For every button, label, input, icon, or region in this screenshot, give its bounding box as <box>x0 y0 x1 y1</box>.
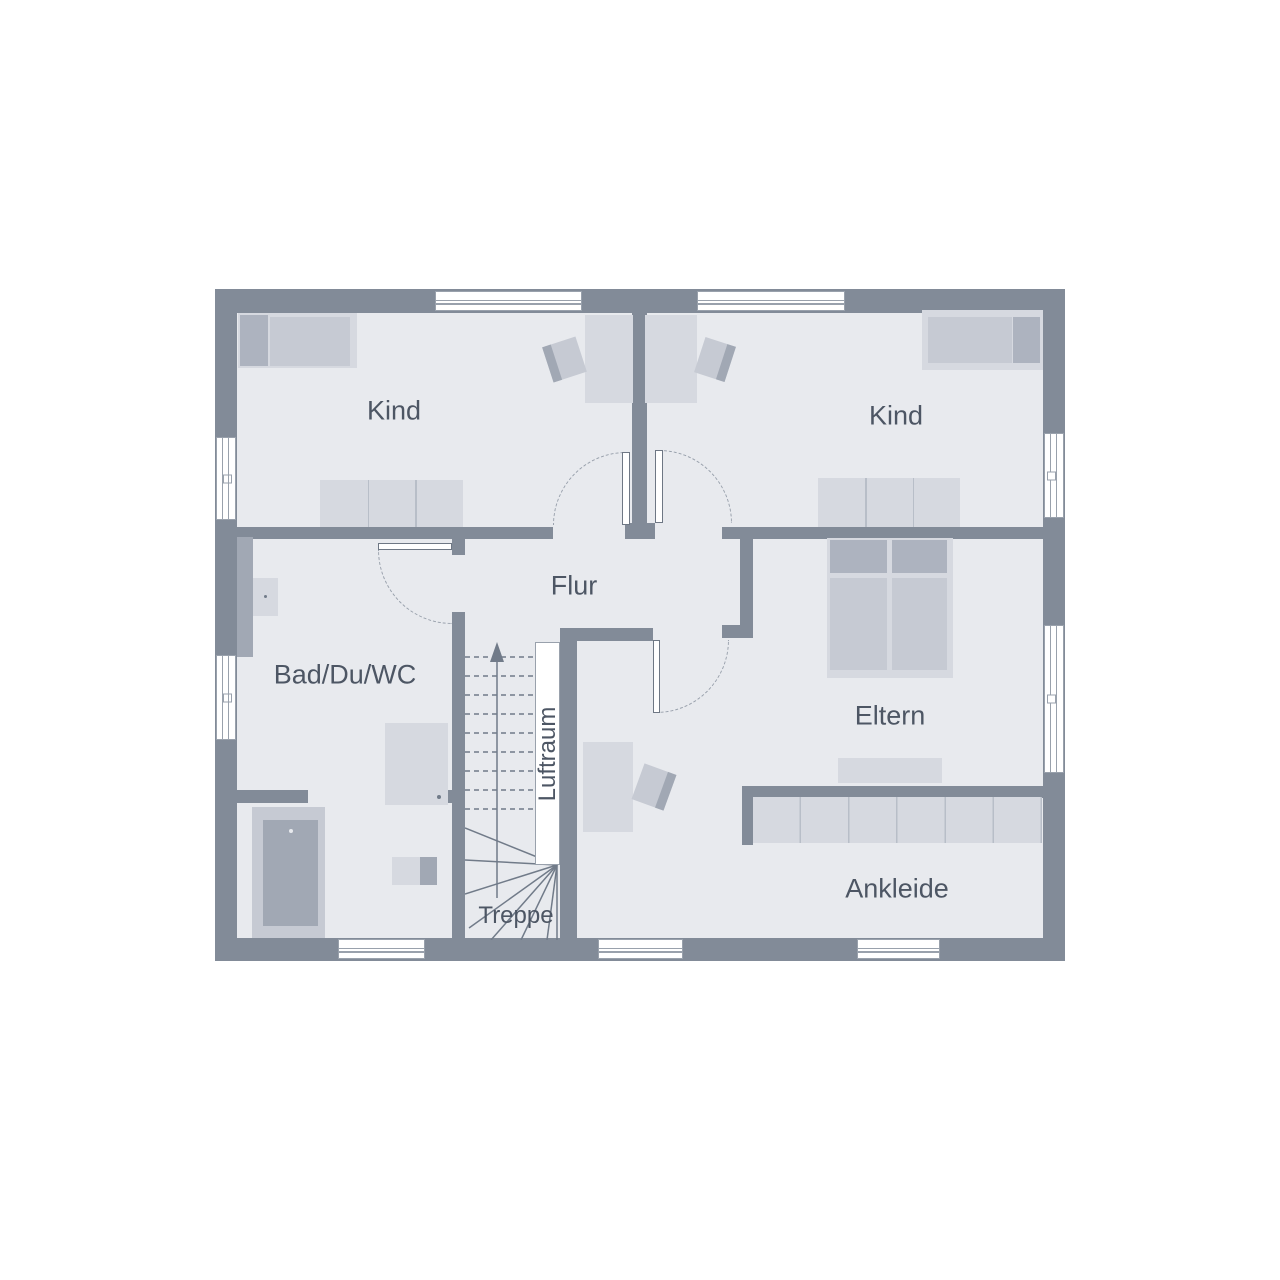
floor-plan: Luftraum Kind Kind Flur Bad <box>215 289 1065 961</box>
window-sill <box>1047 695 1056 704</box>
bed-pillow <box>240 315 268 366</box>
bathtub <box>263 820 318 926</box>
bed-pillow <box>830 540 887 573</box>
dresser-eltern <box>838 758 942 783</box>
shower <box>385 723 448 805</box>
window-left-bad <box>216 655 236 740</box>
bathtub-tap <box>289 829 293 833</box>
window-top-left <box>435 291 582 311</box>
window-sill <box>223 474 232 483</box>
wall-bad-stair <box>452 612 465 940</box>
luftraum-void: Luftraum <box>535 642 560 865</box>
door-leaf-eltern <box>653 640 660 713</box>
wc <box>392 857 420 885</box>
door-leaf-kind-right <box>655 450 663 523</box>
chair-backrest <box>542 345 562 383</box>
bed-pillow <box>892 540 947 573</box>
door-leaf-kind-left <box>622 452 630 525</box>
door-swing-kind-right <box>659 450 732 523</box>
window-top-right <box>697 291 845 311</box>
room-label-treppe: Treppe <box>478 902 553 930</box>
window-bottom-eltern <box>598 939 683 959</box>
door-swing-bad <box>378 550 452 624</box>
wall-ankleide-stub <box>742 786 753 845</box>
wall-flur-eltern-flange <box>722 625 753 638</box>
installation-pillar <box>237 537 253 657</box>
wall-bathtub-alcove <box>237 790 308 803</box>
desk-kind-left <box>585 315 633 403</box>
window-right-kind <box>1044 433 1064 518</box>
room-label-bad: Bad/Du/WC <box>274 660 417 691</box>
outer-wall-left <box>215 289 237 961</box>
door-swing-kind-left <box>553 452 626 525</box>
chair-eltern <box>632 763 677 810</box>
door-leaf-bad <box>378 543 452 550</box>
window-bottom-bad <box>338 939 425 959</box>
desk-kind-right <box>645 315 697 403</box>
bed-blanket <box>928 317 1012 363</box>
window-bottom-ankleide <box>857 939 940 959</box>
washbasin-tap <box>264 595 267 598</box>
room-label-kind-right: Kind <box>869 401 923 432</box>
chair-backrest <box>716 344 736 382</box>
room-label-flur: Flur <box>551 571 598 602</box>
window-sill <box>1047 471 1056 480</box>
room-label-ankleide: Ankleide <box>845 874 949 905</box>
desk-eltern <box>583 742 633 832</box>
bed-pillow <box>1013 317 1040 363</box>
wall-flur-eltern <box>740 539 753 630</box>
wall-bad-stair-stub <box>452 539 465 555</box>
room-label-kind-left: Kind <box>367 396 421 427</box>
wall-kind-bottom-left <box>237 527 553 539</box>
room-label-eltern: Eltern <box>855 701 926 732</box>
dresser-kind-right <box>818 478 960 527</box>
chair-kind-right <box>694 337 736 382</box>
door-swing-eltern <box>656 640 729 713</box>
wall-kind-bottom-stub <box>625 523 655 539</box>
window-right-eltern <box>1044 625 1064 773</box>
stair-up-arrow <box>490 642 504 662</box>
shower-drain <box>437 795 441 799</box>
bed-mattress <box>892 578 947 670</box>
wc-cistern <box>420 857 437 885</box>
bed-mattress <box>830 578 887 670</box>
wardrobe-ankleide <box>753 797 1042 843</box>
window-sill <box>223 693 232 702</box>
dresser-kind-left <box>320 480 463 527</box>
bed-blanket <box>270 317 350 366</box>
window-left-kind <box>216 437 236 520</box>
chair-kind-left <box>542 336 587 382</box>
room-label-luftraum: Luftraum <box>534 706 562 801</box>
chair-backrest <box>655 772 676 811</box>
